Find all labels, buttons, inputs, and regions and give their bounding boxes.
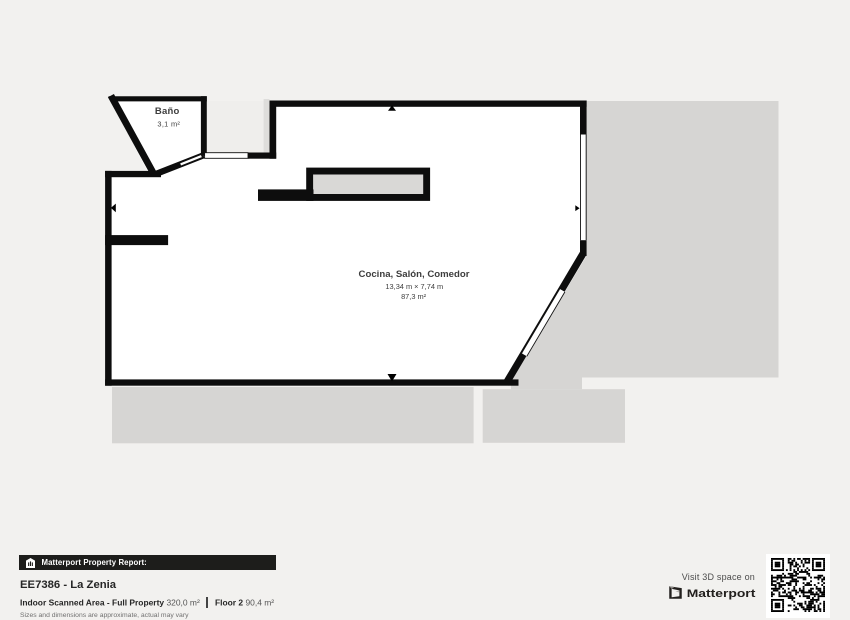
svg-text:87,3 m²: 87,3 m² xyxy=(401,292,427,301)
svg-text:Cocina, Salón, Comedor: Cocina, Salón, Comedor xyxy=(359,269,470,280)
svg-text:13,34 m × 7,74 m: 13,34 m × 7,74 m xyxy=(385,282,443,291)
svg-text:3,1 m²: 3,1 m² xyxy=(157,120,180,129)
svg-text:Baño: Baño xyxy=(155,106,180,117)
